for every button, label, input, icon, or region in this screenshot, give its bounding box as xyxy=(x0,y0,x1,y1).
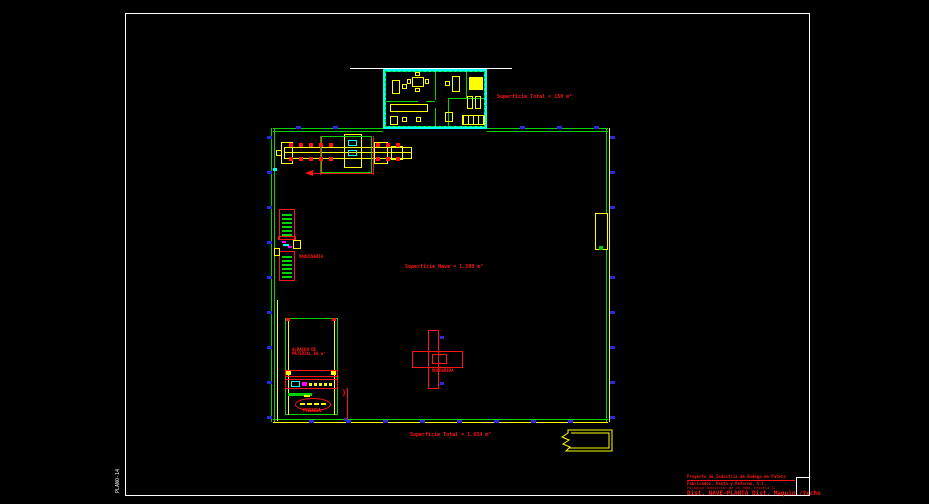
section-line xyxy=(347,388,348,420)
press-part xyxy=(304,395,310,397)
total-area-label: Superficie Total = 1.654 m² xyxy=(410,433,491,439)
ramp xyxy=(556,428,614,454)
press-motor xyxy=(291,381,300,387)
conveyor-stop-square xyxy=(309,157,313,161)
office-partition xyxy=(466,72,467,98)
column-marker xyxy=(267,136,272,139)
press-label: PRENSA xyxy=(303,409,321,415)
moldurera-tick xyxy=(440,382,444,385)
drive-box xyxy=(274,248,280,256)
roller-dot xyxy=(314,383,317,386)
saw-guard-outline xyxy=(321,136,372,173)
title-line1: Proyecto de Industria de Bodega de Palet… xyxy=(687,475,795,479)
corner-tick xyxy=(332,318,336,321)
column-marker xyxy=(610,171,615,174)
column-marker xyxy=(610,206,615,209)
column-marker xyxy=(610,381,615,384)
conveyor-stop-square xyxy=(299,157,303,161)
column-marker xyxy=(267,171,272,174)
chair xyxy=(445,81,450,86)
nave-bottom-wall-outer xyxy=(273,422,608,423)
grid-table xyxy=(462,115,485,125)
shelf xyxy=(467,96,473,109)
shelf xyxy=(475,96,481,109)
press-end xyxy=(331,371,336,375)
roller-dot xyxy=(319,383,322,386)
column-marker xyxy=(610,276,615,279)
nave-top-wall xyxy=(273,128,383,129)
press-end xyxy=(286,371,291,375)
store-room-inner-line xyxy=(334,318,335,415)
column-marker xyxy=(520,126,525,129)
drive-box xyxy=(293,240,301,249)
cabinet-filled xyxy=(469,77,483,90)
column-marker xyxy=(267,381,272,384)
press-table-dash xyxy=(307,403,312,405)
conveyor-stop-square xyxy=(319,157,323,161)
column-marker xyxy=(457,420,462,423)
column-marker xyxy=(267,276,272,279)
column-marker xyxy=(610,346,615,349)
office-partition xyxy=(435,108,436,126)
conveyor-stop-square xyxy=(289,143,293,147)
nave-area-label: Superficie Nave = 1.500 m² xyxy=(405,265,483,271)
cabinet xyxy=(390,104,428,112)
datum-line-right xyxy=(373,136,374,175)
sheet-side-label: PLANO-14 xyxy=(115,449,121,493)
nave-right-wall xyxy=(606,250,607,422)
wall-tick xyxy=(273,168,277,171)
door-jamb xyxy=(599,246,603,250)
chair xyxy=(402,117,407,122)
column-marker xyxy=(267,241,272,244)
roller-dot xyxy=(324,383,327,386)
chair xyxy=(415,88,420,92)
column-marker xyxy=(531,420,536,423)
nave-right-wall xyxy=(606,128,607,213)
column-marker xyxy=(267,346,272,349)
desk xyxy=(445,112,453,122)
conveyor-stop-square xyxy=(386,143,390,147)
column-marker xyxy=(296,126,301,129)
loading-door-recess xyxy=(595,213,608,250)
corner-tick xyxy=(286,318,290,321)
conveyor-stop-square xyxy=(309,143,313,147)
conveyor-stop-square xyxy=(329,157,333,161)
moldurera-head xyxy=(432,354,447,364)
datum-line-left xyxy=(320,136,321,175)
nave-left-wall-inner xyxy=(277,300,278,421)
sensor-mark xyxy=(283,244,289,246)
column-marker xyxy=(494,420,499,423)
column-marker xyxy=(267,416,272,419)
store-room-label-line2: MATERIAL 60 m² xyxy=(292,352,326,356)
desk xyxy=(452,76,460,92)
conveyor-stop-square xyxy=(376,157,380,161)
column-marker xyxy=(333,126,338,129)
cad-drawing-canvas[interactable]: PLANO-14 Superficie Total = 150 m² xyxy=(0,0,929,504)
chair xyxy=(407,79,411,84)
conveyor-stop-square xyxy=(329,143,333,147)
store-room-label: ALMACEN DE MATERIAL 60 m² xyxy=(292,348,326,357)
column-marker xyxy=(568,420,573,423)
sensor-mark xyxy=(288,246,292,248)
conveyor-stop-square xyxy=(319,143,323,147)
office-area-label: Superficie Total = 150 m² xyxy=(497,95,572,101)
conveyor-stop-square xyxy=(299,143,303,147)
chair xyxy=(402,84,407,89)
section-mark: } xyxy=(342,390,346,398)
press-table-dash xyxy=(300,403,305,405)
title-block: Proyecto de Industria de Bodega de Palet… xyxy=(687,475,795,497)
conveyor-stop-square xyxy=(289,157,293,161)
moldurera-tick xyxy=(440,336,444,339)
machine-arm xyxy=(404,152,412,153)
chair xyxy=(425,79,429,84)
press-coupling xyxy=(302,382,307,386)
column-marker xyxy=(267,311,272,314)
title-line4: Dist. NAVE-PLANTA Dist. Maquin./techo xyxy=(687,491,795,498)
chair xyxy=(415,72,420,76)
column-marker xyxy=(557,126,562,129)
roller-dot xyxy=(309,383,312,386)
machine-label: MAQUINARIA xyxy=(299,255,323,259)
office-partition xyxy=(435,72,436,100)
conveyor-stop-square xyxy=(396,157,400,161)
office-partition xyxy=(426,101,435,102)
column-marker xyxy=(594,126,599,129)
sensor-mark xyxy=(282,241,286,243)
desk xyxy=(392,80,400,94)
desk xyxy=(390,116,398,125)
conveyor-stop-square xyxy=(376,143,380,147)
column-marker xyxy=(610,311,615,314)
column-marker xyxy=(383,420,388,423)
chair xyxy=(416,117,421,122)
revision-box xyxy=(796,477,810,496)
machine-end-cap xyxy=(276,150,282,156)
column-marker xyxy=(309,420,314,423)
roller-conveyor-lower xyxy=(279,251,295,281)
column-marker xyxy=(610,136,615,139)
column-marker xyxy=(420,420,425,423)
press-table-dash xyxy=(321,403,326,405)
nave-top-wall xyxy=(487,128,608,129)
conveyor-stop-square xyxy=(396,143,400,147)
store-room-inner-line xyxy=(288,318,289,415)
nave-bottom-wall xyxy=(273,419,608,420)
column-marker xyxy=(610,416,615,419)
office-partition xyxy=(386,101,418,102)
press-table-dash xyxy=(314,403,319,405)
column-marker xyxy=(267,206,272,209)
column-marker xyxy=(346,420,351,423)
conveyor-stop-square xyxy=(386,157,390,161)
flow-arrow xyxy=(305,170,313,176)
meeting-table xyxy=(412,77,424,87)
roller-dot xyxy=(329,383,332,386)
moldurera-label: MOLDURERA xyxy=(432,369,454,373)
datum-line-bottom xyxy=(312,173,374,174)
